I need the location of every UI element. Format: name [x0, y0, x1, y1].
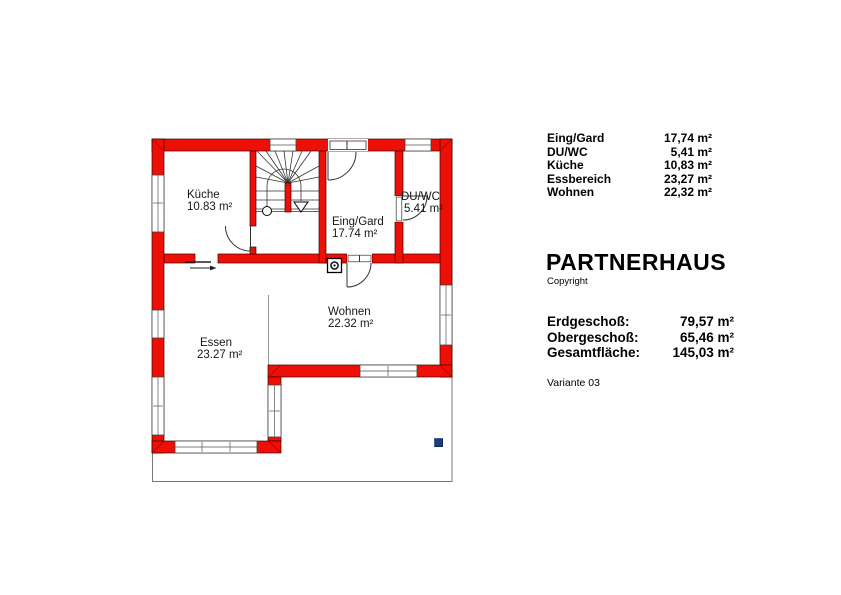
room-area: 5,41 m²: [671, 146, 712, 160]
label-wohnen: Wohnen: [328, 306, 371, 318]
room-name: Wohnen: [547, 186, 594, 200]
label-eing-area: 17.74 m²: [332, 228, 378, 240]
label-kueche: Küche: [187, 189, 220, 201]
table-row: Essbereich 23,27 m²: [547, 173, 712, 187]
variant-label: Variante 03: [547, 377, 600, 389]
room-name: Essbereich: [547, 173, 611, 187]
electrical-symbol: [328, 259, 342, 273]
total-label: Gesamtfläche:: [547, 345, 640, 361]
room-name: DU/WC: [547, 146, 588, 160]
room-name: Eing/Gard: [547, 132, 604, 146]
brand-title: PARTNERHAUS: [546, 249, 726, 276]
label-essen-area: 23.27 m²: [197, 349, 243, 361]
room-area: 22,32 m²: [664, 186, 712, 200]
room-area: 10,83 m²: [664, 159, 712, 173]
totals-table: Erdgeschoß: 79,57 m² Obergeschoß: 65,46 …: [547, 314, 734, 361]
total-value: 65,46 m²: [680, 330, 734, 346]
table-row: DU/WC 5,41 m²: [547, 146, 712, 160]
total-row: Obergeschoß: 65,46 m²: [547, 330, 734, 346]
label-duwc: DU/WC: [401, 191, 440, 203]
table-row: Küche 10,83 m²: [547, 159, 712, 173]
total-row: Erdgeschoß: 79,57 m²: [547, 314, 734, 330]
floor-plan: Küche 10.83 m² Eing/Gard 17.74 m² DU/WC …: [140, 125, 472, 487]
label-eing: Eing/Gard: [332, 216, 384, 228]
floor-plan-svg: Küche 10.83 m² Eing/Gard 17.74 m² DU/WC …: [140, 125, 472, 487]
label-essen: Essen: [200, 337, 232, 349]
page: Küche 10.83 m² Eing/Gard 17.74 m² DU/WC …: [0, 0, 841, 595]
total-value: 145,03 m²: [672, 345, 734, 361]
table-row: Eing/Gard 17,74 m²: [547, 132, 712, 146]
label-wohnen-area: 22.32 m²: [328, 318, 374, 330]
room-area-table: Eing/Gard 17,74 m² DU/WC 5,41 m² Küche 1…: [547, 132, 712, 200]
room-area: 23,27 m²: [664, 173, 712, 187]
total-row: Gesamtfläche: 145,03 m²: [547, 345, 734, 361]
copyright-note: Copyright: [547, 276, 588, 287]
total-value: 79,57 m²: [680, 314, 734, 330]
table-row: Wohnen 22,32 m²: [547, 186, 712, 200]
logo-mark: [434, 438, 443, 447]
total-label: Obergeschoß:: [547, 330, 639, 346]
room-area: 17,74 m²: [664, 132, 712, 146]
total-label: Erdgeschoß:: [547, 314, 630, 330]
label-kueche-area: 10.83 m²: [187, 201, 233, 213]
label-duwc-area: 5.41 m²: [404, 203, 443, 215]
room-name: Küche: [547, 159, 584, 173]
